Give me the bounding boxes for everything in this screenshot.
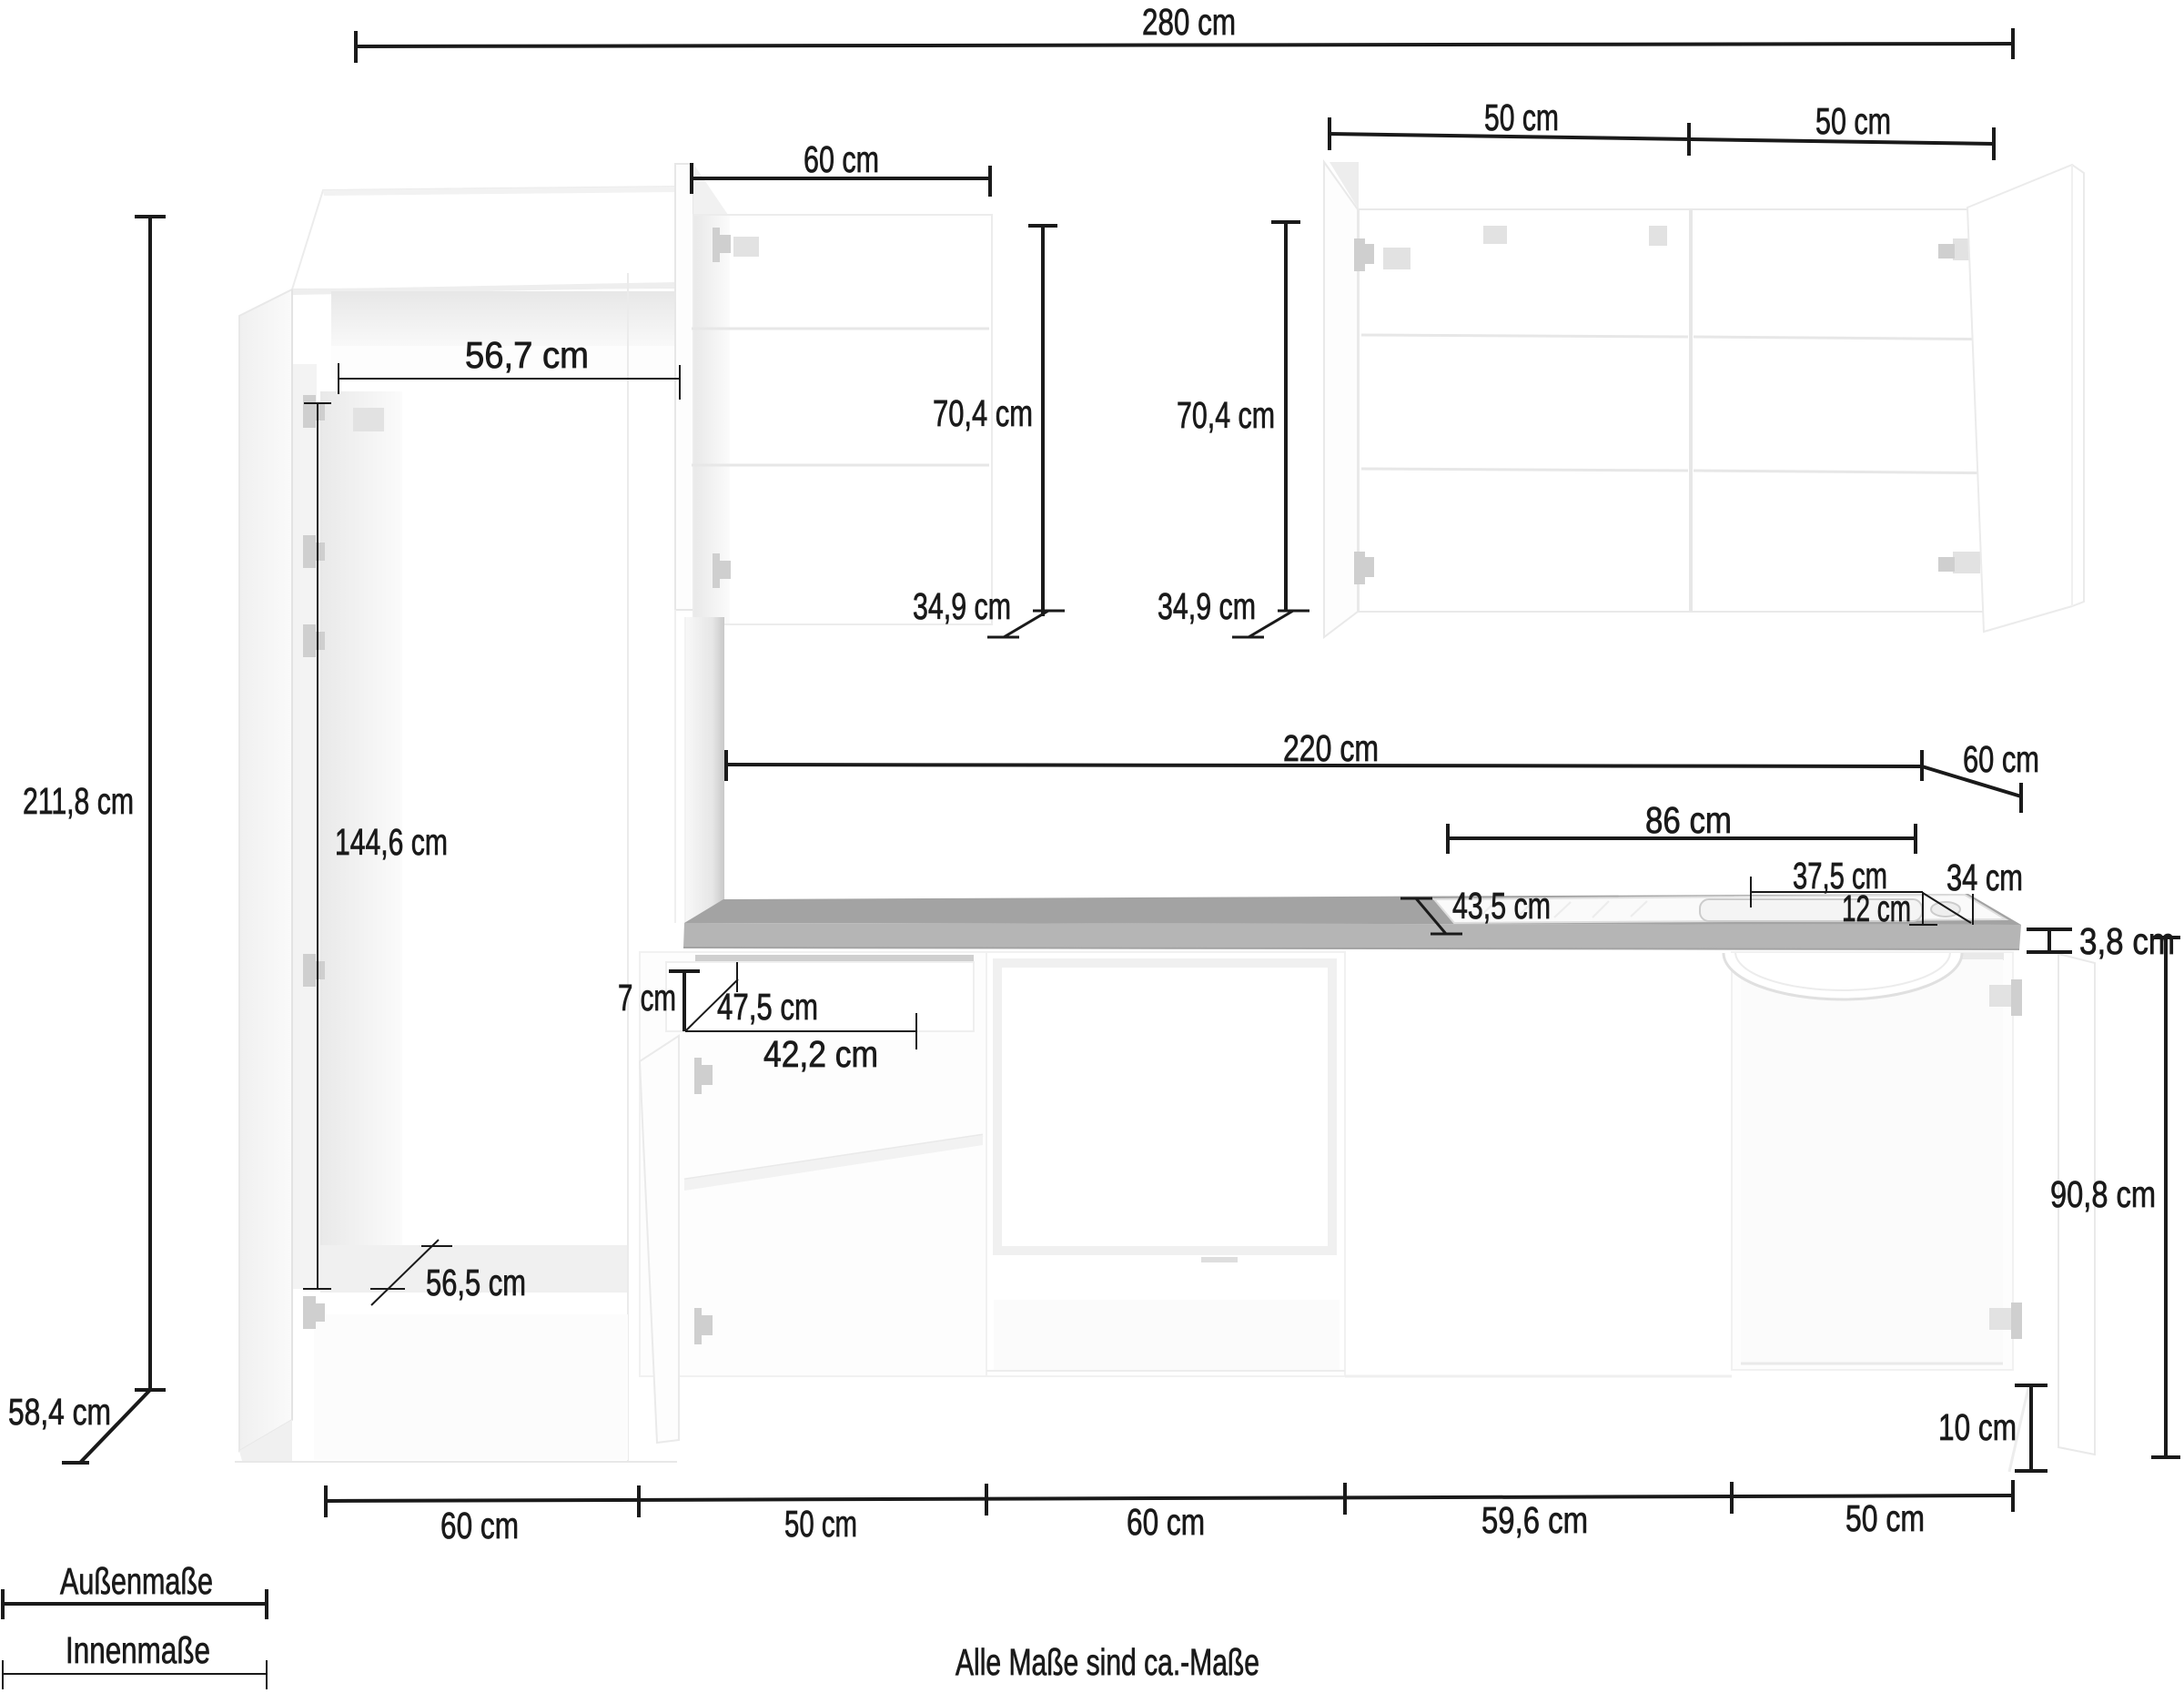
svg-text:50 cm: 50 cm — [784, 1503, 857, 1545]
svg-text:Alle Maße sind ca.-Maße: Alle Maße sind ca.-Maße — [955, 1641, 1259, 1683]
svg-text:60 cm: 60 cm — [1963, 738, 2039, 780]
svg-text:Außenmaße: Außenmaße — [60, 1560, 213, 1602]
svg-text:47,5 cm: 47,5 cm — [717, 986, 818, 1028]
svg-text:70,4 cm: 70,4 cm — [1177, 394, 1275, 436]
svg-text:86 cm: 86 cm — [1645, 799, 1732, 841]
svg-text:34,9 cm: 34,9 cm — [913, 585, 1011, 627]
svg-text:211,8 cm: 211,8 cm — [23, 780, 134, 822]
svg-text:56,7 cm: 56,7 cm — [465, 334, 589, 376]
svg-text:60 cm: 60 cm — [804, 138, 879, 180]
svg-text:12 cm: 12 cm — [1842, 887, 1911, 929]
svg-text:280 cm: 280 cm — [1142, 1, 1236, 43]
svg-text:60 cm: 60 cm — [1127, 1501, 1205, 1543]
svg-text:50 cm: 50 cm — [1845, 1497, 1925, 1539]
svg-text:56,5 cm: 56,5 cm — [426, 1262, 526, 1303]
svg-text:42,2 cm: 42,2 cm — [763, 1033, 878, 1075]
svg-text:70,4 cm: 70,4 cm — [933, 392, 1033, 434]
svg-text:50 cm: 50 cm — [1815, 100, 1891, 142]
svg-text:90,8 cm: 90,8 cm — [2050, 1173, 2156, 1215]
svg-text:10 cm: 10 cm — [1938, 1406, 2017, 1448]
svg-text:144,6 cm: 144,6 cm — [335, 821, 448, 863]
svg-text:58,4 cm: 58,4 cm — [8, 1391, 111, 1433]
svg-text:34,9 cm: 34,9 cm — [1158, 585, 1256, 627]
svg-text:59,6 cm: 59,6 cm — [1481, 1499, 1588, 1541]
svg-text:34 cm: 34 cm — [1946, 857, 2023, 898]
svg-text:220 cm: 220 cm — [1283, 727, 1379, 769]
svg-text:3,8 cm: 3,8 cm — [2079, 920, 2175, 962]
svg-text:Innenmaße: Innenmaße — [66, 1629, 210, 1671]
svg-text:43,5 cm: 43,5 cm — [1452, 885, 1551, 927]
svg-text:60 cm: 60 cm — [440, 1505, 519, 1546]
svg-text:7 cm: 7 cm — [618, 977, 676, 1019]
svg-text:50 cm: 50 cm — [1484, 96, 1559, 138]
